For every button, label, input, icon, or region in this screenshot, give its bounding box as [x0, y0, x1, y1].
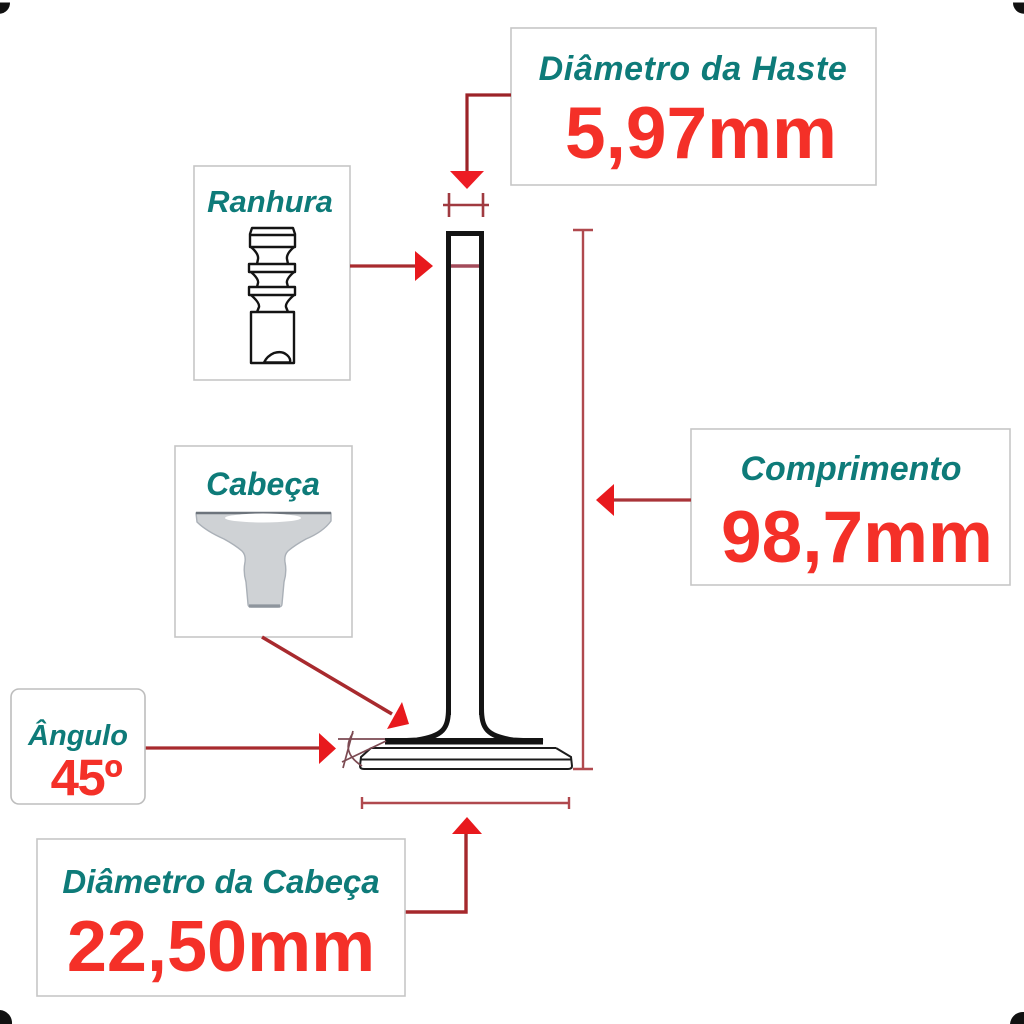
svg-text:Diâmetro da Cabeça: Diâmetro da Cabeça — [62, 863, 379, 900]
svg-text:Ranhura: Ranhura — [207, 184, 333, 219]
svg-text:5,97mm: 5,97mm — [565, 93, 837, 174]
svg-text:98,7mm: 98,7mm — [721, 497, 993, 578]
svg-text:Ângulo: Ângulo — [27, 718, 128, 752]
svg-text:45º: 45º — [51, 749, 123, 806]
svg-text:Diâmetro da Haste: Diâmetro da Haste — [539, 50, 848, 88]
svg-text:Cabeça: Cabeça — [206, 466, 320, 502]
svg-text:Comprimento: Comprimento — [741, 450, 962, 488]
svg-text:22,50mm: 22,50mm — [67, 907, 375, 987]
